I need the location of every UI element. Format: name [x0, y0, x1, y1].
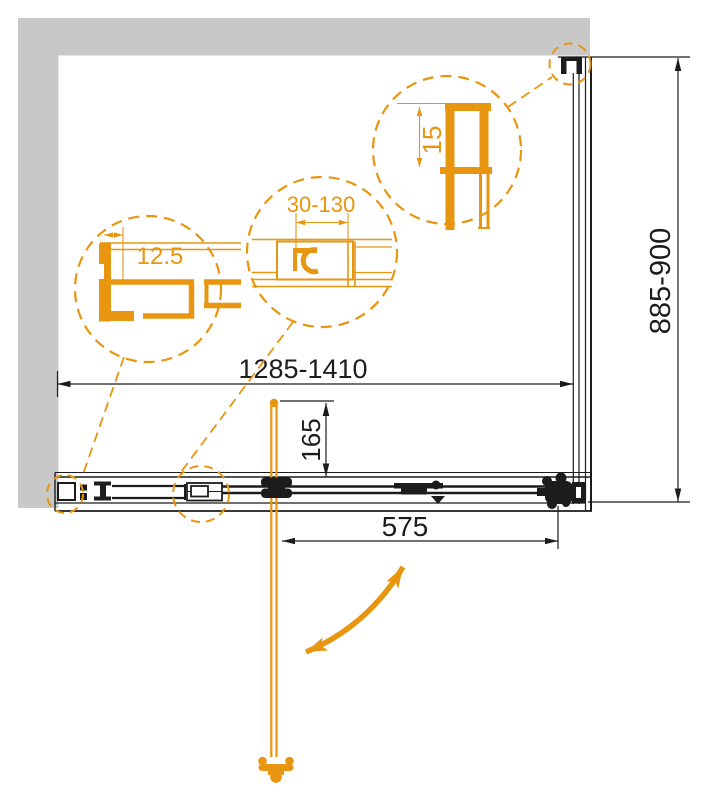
dimension-handle-offset: 165 — [280, 401, 334, 477]
door-swing-arrow-icon — [306, 567, 403, 652]
door-handle-icon — [258, 757, 294, 783]
wall-profile — [58, 483, 75, 500]
adjustment-detail-label: 30-130 — [287, 192, 356, 217]
dimension-door-opening: 575 — [282, 506, 558, 549]
overall-width-label: 1285-1410 — [238, 354, 367, 384]
bottom-rail-assembly — [55, 473, 592, 512]
rail-detail-label: 15 — [417, 126, 447, 155]
detail-circle-rail: 15 — [373, 76, 521, 230]
detail-circle-adjustment: 30-130 — [247, 177, 397, 327]
adjustment-profile — [187, 483, 222, 501]
detail-leader-line — [508, 77, 552, 107]
side-depth-label: 885-900 — [645, 228, 677, 334]
technical-drawing-canvas: 1285-1410 885-900 165 575 — [0, 0, 703, 800]
wall-profile-detail-label: 12.5 — [137, 243, 184, 270]
roller-bracket — [94, 482, 111, 501]
wall-mount-bracket-icon — [561, 57, 582, 75]
handle-offset-label: 165 — [296, 418, 326, 461]
shower-enclosure-plan: 1285-1410 885-900 165 575 — [0, 0, 703, 800]
door-open-line — [258, 399, 294, 783]
detail-circle-wall-profile: 12.5 — [75, 216, 241, 362]
enclosure-frame: 1285-1410 885-900 165 575 — [55, 57, 690, 550]
detail-overlays: 12.5 30-130 — [47, 44, 591, 783]
dimension-side-depth: 885-900 — [588, 58, 690, 502]
detail-leader-line — [82, 357, 124, 477]
door-opening-label: 575 — [382, 511, 429, 542]
side-panel — [573, 57, 591, 512]
